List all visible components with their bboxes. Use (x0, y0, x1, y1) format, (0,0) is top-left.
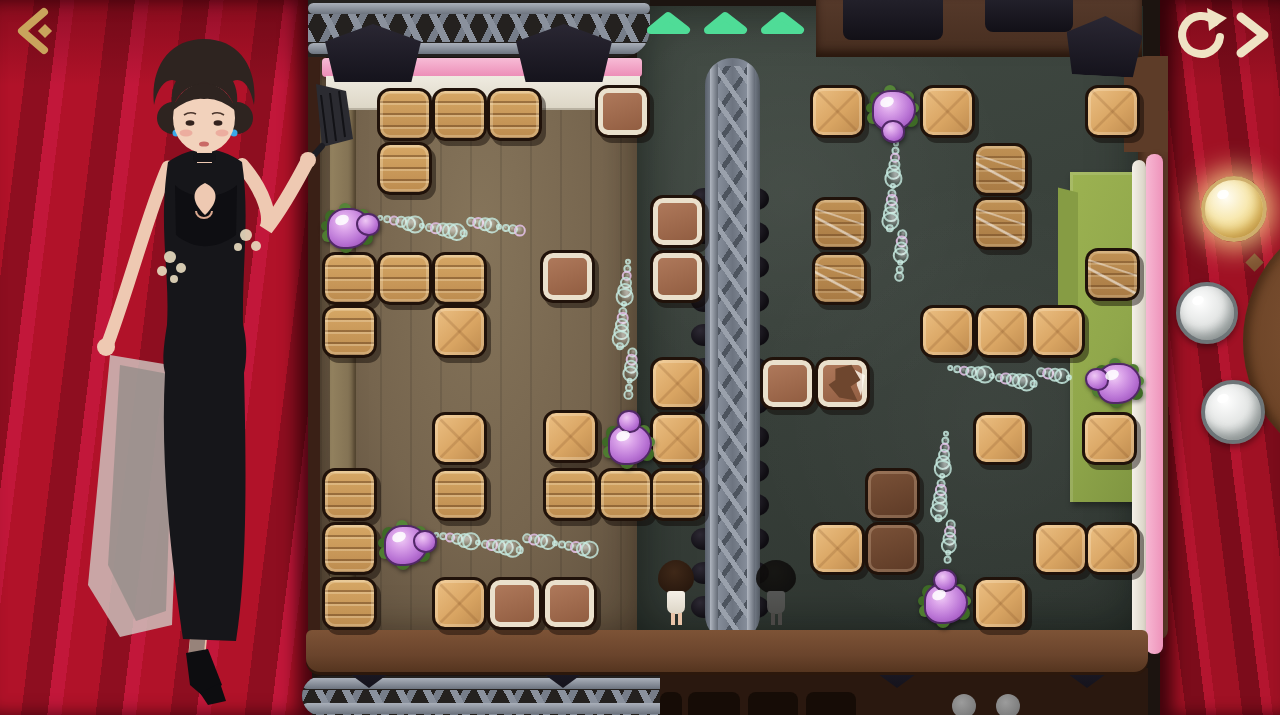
crate-plank[interactable] (487, 88, 542, 141)
crate-smooth[interactable] (650, 357, 705, 410)
crate-smooth[interactable] (920, 305, 975, 358)
next-chevron-icon (1231, 10, 1275, 60)
slime[interactable] (1086, 351, 1150, 415)
seat-dot (952, 694, 976, 715)
bubble-trail (435, 527, 600, 561)
back-chevron-icon (8, 4, 62, 58)
bubble-trail (379, 210, 530, 244)
crate-smooth[interactable] (432, 305, 487, 358)
crate-dark[interactable] (650, 195, 705, 248)
crate-scratched[interactable] (812, 252, 867, 305)
slime[interactable] (913, 571, 977, 635)
crate-smooth[interactable] (543, 410, 598, 463)
chibi-hair (756, 560, 796, 594)
slime[interactable] (597, 412, 661, 476)
crate-plank[interactable] (432, 252, 487, 305)
chibi-white (658, 560, 694, 628)
center-truss (705, 58, 760, 642)
crate-dark[interactable] (542, 577, 597, 630)
crate-darker[interactable] (865, 522, 920, 575)
crate-smooth[interactable] (973, 577, 1028, 630)
crate-smooth[interactable] (920, 85, 975, 138)
crate-smooth[interactable] (975, 305, 1030, 358)
restart-button[interactable] (1173, 6, 1229, 67)
crate-smooth[interactable] (1082, 412, 1137, 465)
crate-scratched[interactable] (973, 197, 1028, 250)
crate-dark[interactable] (650, 250, 705, 303)
crate-plank[interactable] (377, 252, 432, 305)
slime[interactable] (373, 513, 437, 577)
crate-smooth[interactable] (1085, 522, 1140, 575)
stage-ledge (306, 630, 1148, 672)
score-orb-unlit (1176, 282, 1238, 344)
hostess-illustration (50, 25, 360, 715)
crate-smooth[interactable] (810, 522, 865, 575)
score-orb-unlit (1201, 380, 1265, 444)
crate-smooth[interactable] (432, 577, 487, 630)
crate-plank[interactable] (377, 88, 432, 141)
hanging-curtain-block (985, 0, 1073, 32)
chibi-hair (658, 560, 694, 594)
crate-plank[interactable] (432, 88, 487, 141)
crate-smooth[interactable] (810, 85, 865, 138)
game-stage (0, 0, 1280, 715)
crate-smooth[interactable] (432, 412, 487, 465)
refresh-icon (1173, 6, 1229, 64)
crate-smooth[interactable] (1085, 85, 1140, 138)
crate-smooth[interactable] (1030, 305, 1085, 358)
crate-dark[interactable] (540, 250, 595, 303)
crate-dark[interactable] (487, 577, 542, 630)
progress-triangle-icon (703, 11, 748, 39)
back-button[interactable] (8, 4, 62, 61)
hanging-curtain-block (843, 0, 943, 40)
score-orb-lit (1201, 176, 1267, 242)
next-button[interactable] (1231, 10, 1275, 63)
slime[interactable] (861, 78, 925, 142)
crate-plank[interactable] (543, 468, 598, 521)
crate-plank[interactable] (432, 468, 487, 521)
progress-triangle-icon (760, 11, 805, 39)
chibi-dress (667, 591, 685, 614)
crate-smooth[interactable] (973, 412, 1028, 465)
crate-darker[interactable] (865, 468, 920, 521)
crate-scratched[interactable] (973, 143, 1028, 196)
progress-triangles (646, 11, 805, 39)
crate-smooth[interactable] (1033, 522, 1088, 575)
bubble-trail (949, 360, 1082, 394)
crate-broken[interactable] (815, 357, 870, 410)
progress-triangle-icon (646, 11, 691, 39)
crate-dark[interactable] (760, 357, 815, 410)
crate-dark[interactable] (595, 85, 650, 138)
crate-scratched[interactable] (1085, 248, 1140, 301)
chibi-dress (767, 591, 785, 614)
crate-scratched[interactable] (812, 197, 867, 250)
seat-dot (996, 694, 1020, 715)
crate-plank[interactable] (377, 142, 432, 195)
chibi-shadow (758, 560, 794, 628)
